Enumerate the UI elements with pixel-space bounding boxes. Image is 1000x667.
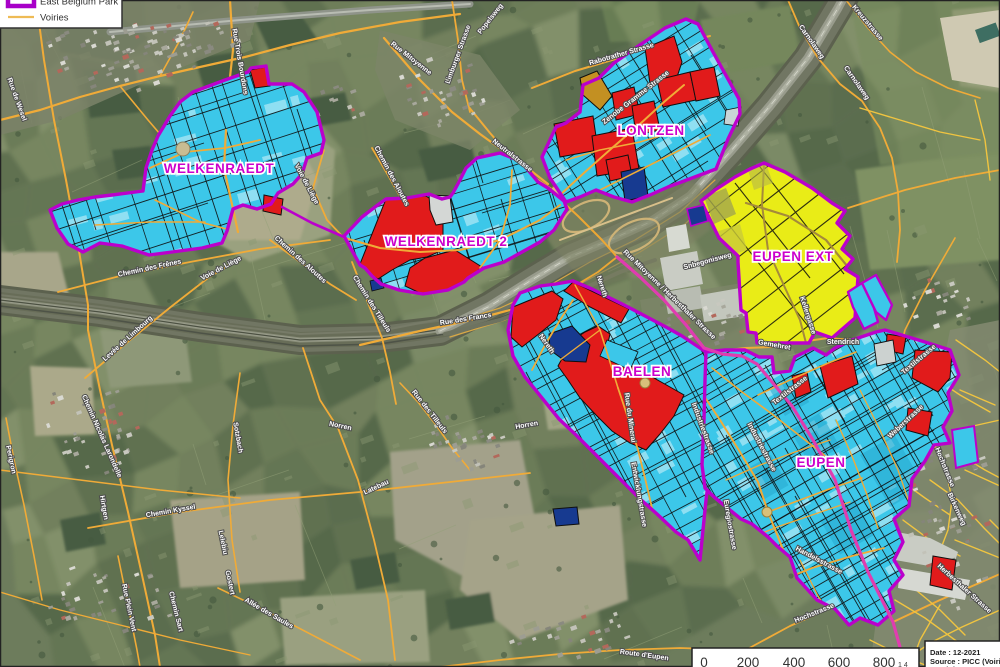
svg-text:800: 800 bbox=[873, 655, 896, 667]
svg-text:0: 0 bbox=[700, 655, 708, 667]
svg-text:EUPEN: EUPEN bbox=[796, 455, 845, 470]
svg-text:Stendrich: Stendrich bbox=[827, 339, 859, 346]
svg-text:East Belgium Park: East Belgium Park bbox=[40, 0, 118, 8]
svg-text:1 4: 1 4 bbox=[898, 662, 908, 667]
svg-text:WELKENRAEDT: WELKENRAEDT bbox=[164, 161, 275, 176]
svg-text:400: 400 bbox=[783, 655, 806, 667]
svg-text:WELKENRAEDT 2: WELKENRAEDT 2 bbox=[385, 234, 508, 249]
svg-text:BAELEN: BAELEN bbox=[613, 364, 672, 379]
svg-text:600: 600 bbox=[828, 655, 851, 667]
svg-text:Date : 12-2021: Date : 12-2021 bbox=[930, 648, 980, 657]
svg-text:200: 200 bbox=[737, 655, 760, 667]
svg-text:Voiries: Voiries bbox=[40, 13, 69, 24]
svg-text:EUPEN EXT: EUPEN EXT bbox=[752, 249, 833, 264]
svg-text:LONTZEN: LONTZEN bbox=[617, 123, 684, 138]
